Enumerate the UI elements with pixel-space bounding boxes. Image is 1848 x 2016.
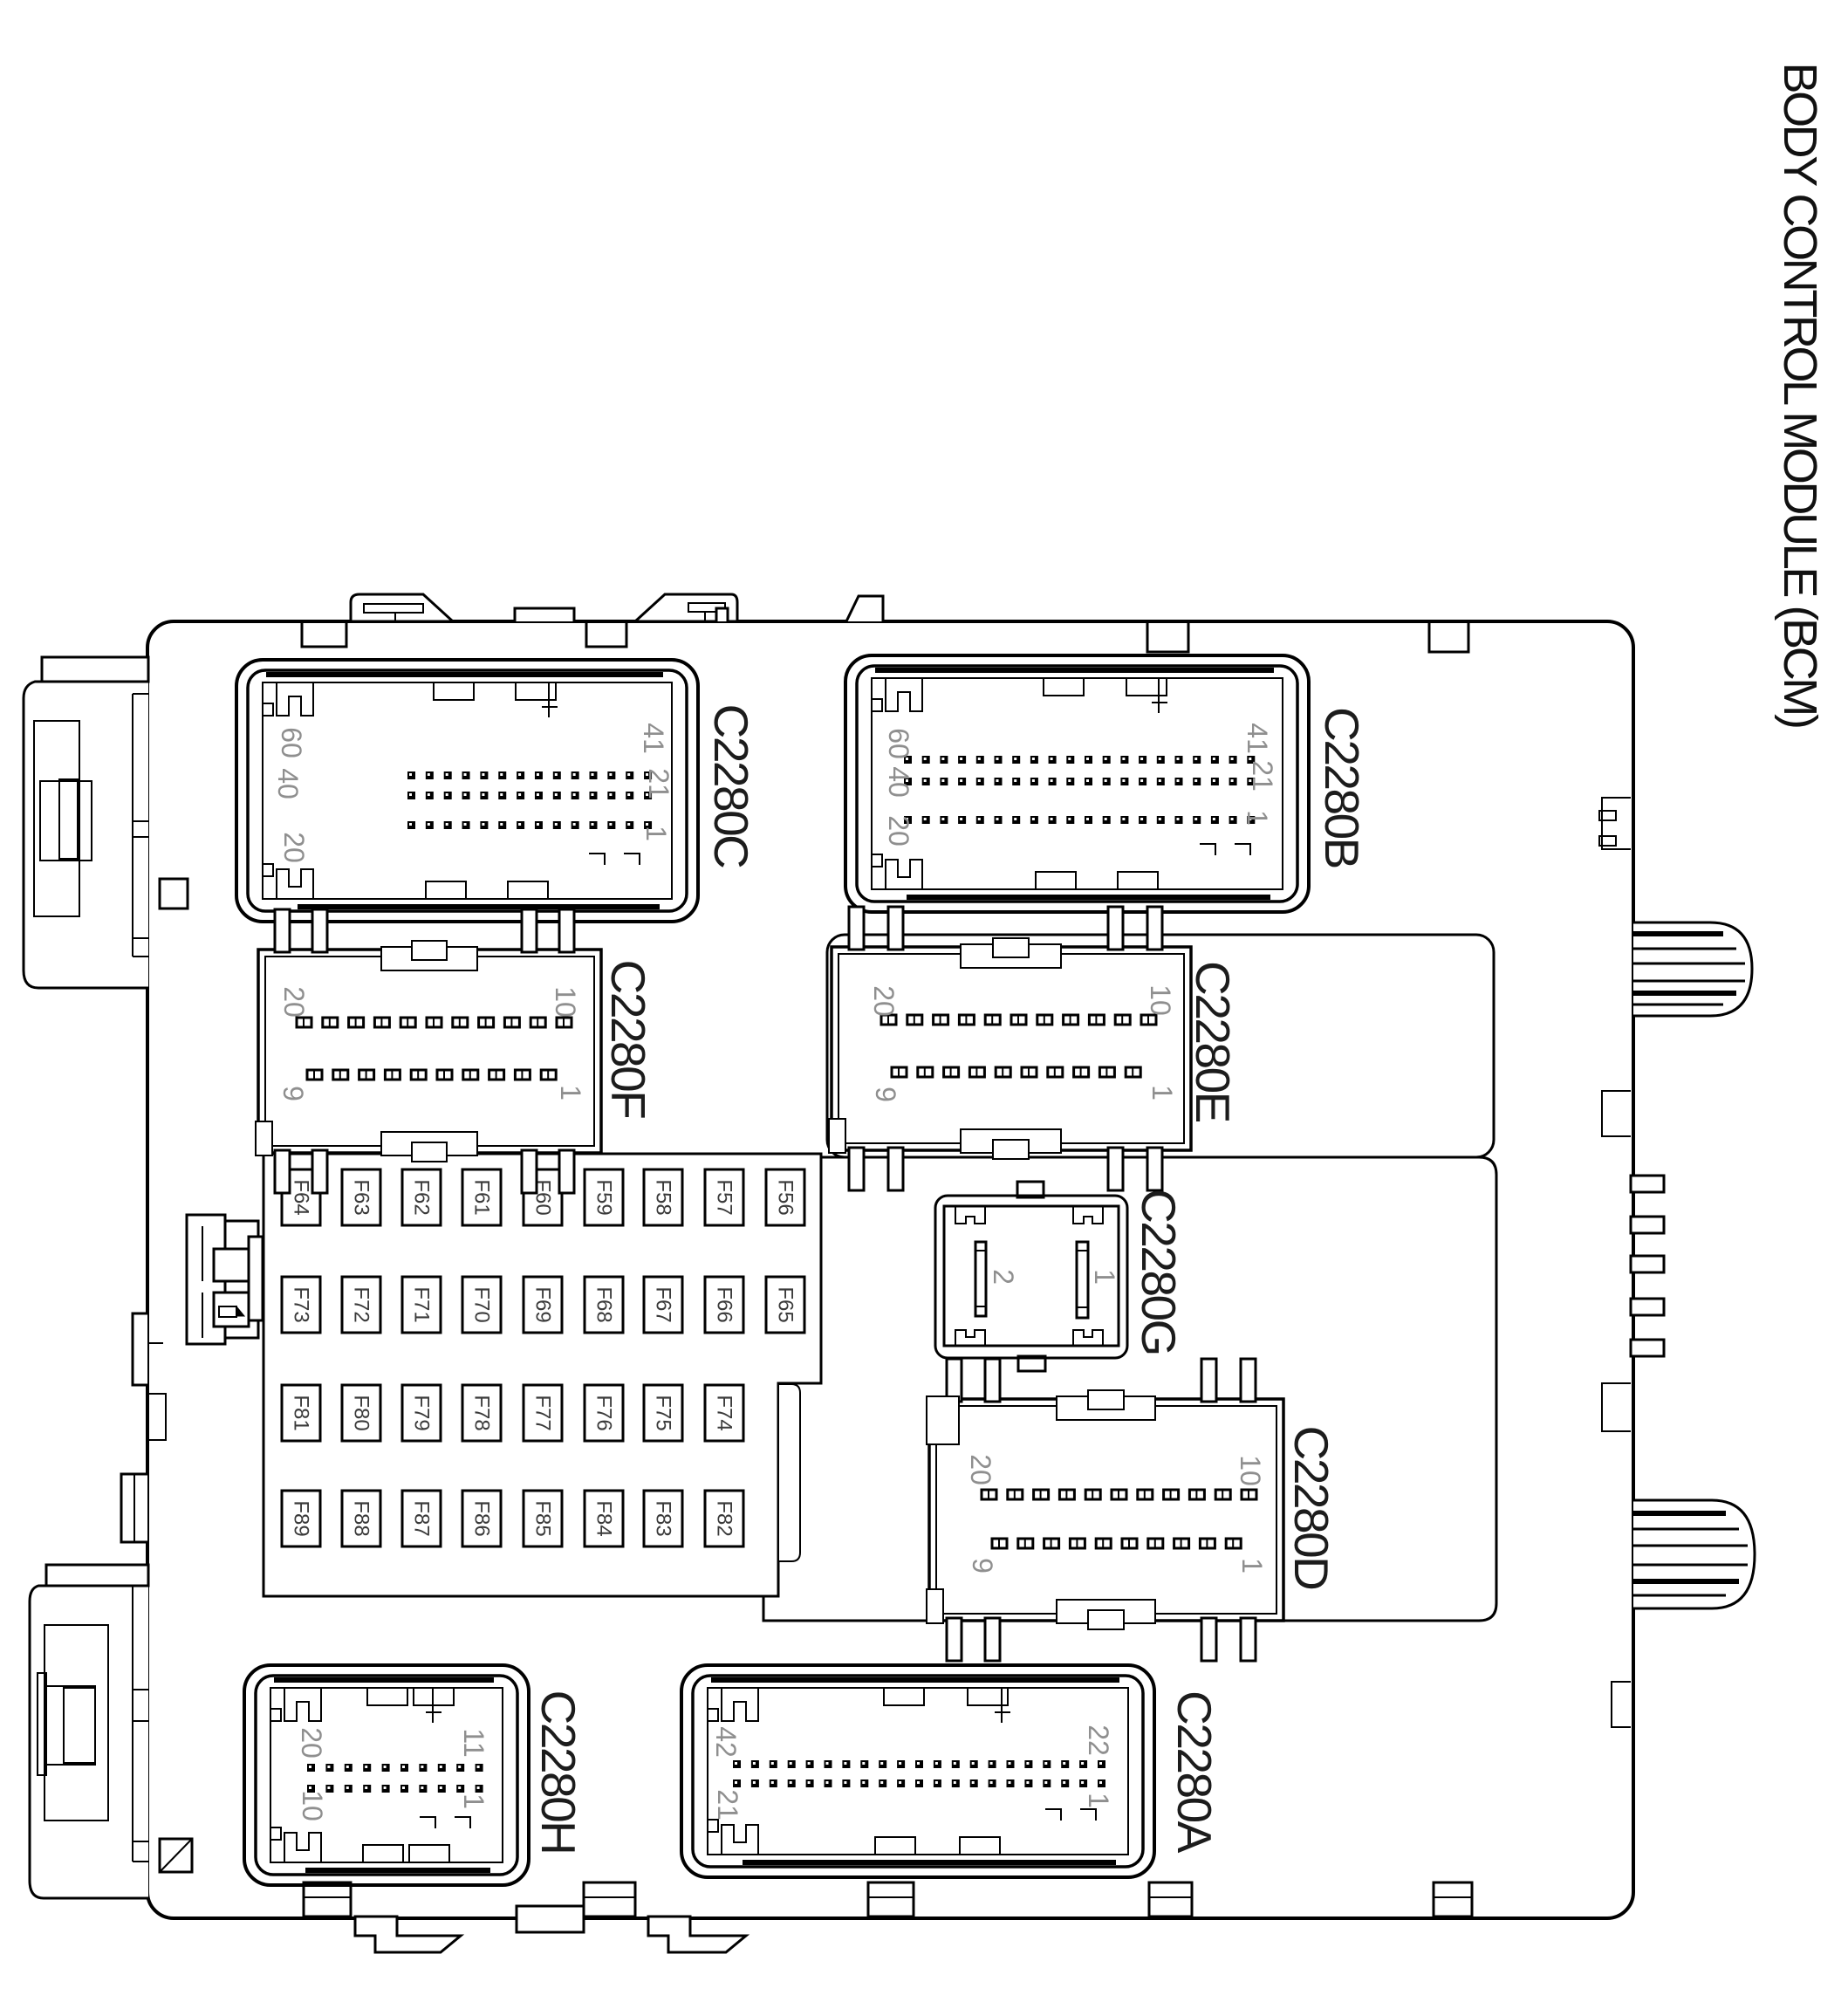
svg-text:60: 60: [883, 728, 914, 759]
svg-text:2: 2: [988, 1269, 1019, 1285]
svg-text:F82: F82: [713, 1500, 736, 1536]
svg-text:F68: F68: [592, 1286, 616, 1322]
svg-text:F78: F78: [470, 1395, 494, 1430]
svg-text:F79: F79: [410, 1395, 434, 1430]
svg-text:F71: F71: [410, 1286, 434, 1322]
svg-text:F70: F70: [470, 1286, 494, 1322]
svg-text:F74: F74: [713, 1395, 736, 1430]
svg-text:21: 21: [712, 1789, 743, 1821]
svg-text:11: 11: [458, 1728, 489, 1757]
svg-text:F56: F56: [774, 1179, 797, 1215]
svg-text:20: 20: [296, 1727, 327, 1759]
svg-text:1: 1: [458, 1793, 489, 1809]
svg-text:20: 20: [278, 986, 310, 1018]
svg-text:C2280H: C2280H: [531, 1690, 585, 1854]
svg-text:1: 1: [555, 1085, 586, 1101]
svg-text:1: 1: [640, 826, 672, 841]
svg-text:F65: F65: [774, 1286, 797, 1322]
svg-text:F88: F88: [350, 1500, 373, 1536]
svg-text:F89: F89: [290, 1500, 313, 1536]
svg-text:9: 9: [967, 1558, 998, 1574]
svg-text:20: 20: [965, 1454, 996, 1485]
svg-text:F85: F85: [531, 1500, 555, 1536]
svg-text:1: 1: [1242, 810, 1273, 826]
svg-text:F57: F57: [713, 1179, 736, 1215]
svg-text:C2280B: C2280B: [1315, 707, 1369, 867]
svg-text:20: 20: [868, 985, 900, 1017]
svg-text:10: 10: [550, 986, 581, 1018]
svg-text:C2280A: C2280A: [1167, 1690, 1222, 1854]
svg-text:F81: F81: [290, 1395, 313, 1430]
svg-text:1: 1: [1083, 1793, 1114, 1808]
svg-text:1: 1: [1089, 1269, 1120, 1285]
svg-text:F86: F86: [470, 1500, 494, 1536]
svg-text:41: 41: [638, 723, 669, 754]
svg-text:40: 40: [272, 768, 304, 799]
svg-text:60: 60: [276, 727, 307, 758]
svg-text:F75: F75: [652, 1395, 675, 1430]
svg-text:9: 9: [277, 1086, 309, 1101]
svg-text:40: 40: [883, 766, 914, 798]
svg-text:9: 9: [870, 1087, 901, 1102]
svg-text:F72: F72: [350, 1286, 373, 1322]
svg-text:F61: F61: [470, 1179, 494, 1215]
svg-text:1: 1: [1236, 1558, 1268, 1574]
svg-text:41: 41: [1242, 723, 1273, 754]
svg-text:F87: F87: [410, 1500, 434, 1536]
svg-text:F67: F67: [652, 1286, 675, 1322]
svg-text:F58: F58: [652, 1179, 675, 1215]
svg-text:F83: F83: [652, 1500, 675, 1536]
svg-text:F69: F69: [531, 1286, 555, 1322]
svg-text:F77: F77: [531, 1395, 555, 1430]
svg-text:C2280C: C2280C: [704, 704, 758, 868]
svg-text:C2280D: C2280D: [1284, 1426, 1338, 1590]
svg-text:22: 22: [1083, 1725, 1114, 1756]
svg-text:F76: F76: [592, 1395, 616, 1430]
svg-text:BODY CONTROL MODULE (BCM): BODY CONTROL MODULE (BCM): [1774, 62, 1826, 726]
svg-text:F64: F64: [290, 1179, 313, 1215]
svg-text:F84: F84: [592, 1500, 616, 1536]
svg-text:F63: F63: [350, 1179, 373, 1215]
svg-text:F73: F73: [290, 1286, 313, 1322]
svg-text:F80: F80: [350, 1395, 373, 1430]
svg-text:F66: F66: [713, 1286, 736, 1322]
svg-text:F59: F59: [592, 1179, 616, 1215]
svg-text:10: 10: [1145, 984, 1176, 1016]
svg-text:C2280E: C2280E: [1186, 961, 1240, 1122]
svg-text:42: 42: [710, 1726, 742, 1758]
svg-text:10: 10: [1235, 1455, 1266, 1486]
svg-text:F62: F62: [410, 1179, 434, 1215]
svg-text:C2280G: C2280G: [1132, 1189, 1186, 1354]
svg-text:21: 21: [1247, 760, 1278, 792]
svg-text:C2280F: C2280F: [601, 960, 655, 1119]
svg-text:10: 10: [297, 1790, 328, 1821]
svg-text:20: 20: [278, 832, 310, 863]
svg-text:21: 21: [643, 768, 674, 799]
svg-text:20: 20: [883, 815, 914, 847]
svg-text:1: 1: [1146, 1085, 1178, 1101]
